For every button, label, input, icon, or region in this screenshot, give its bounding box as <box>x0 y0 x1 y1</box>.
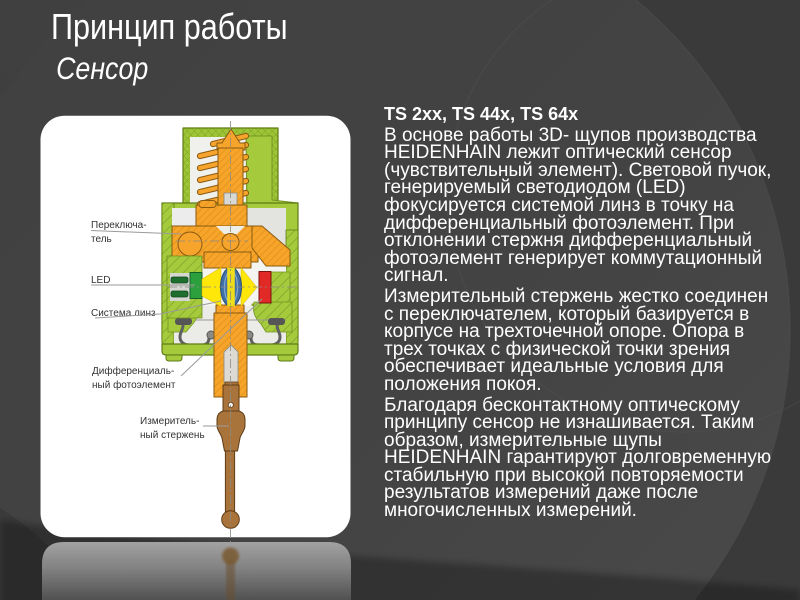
svg-text:LED: LED <box>91 275 110 286</box>
svg-text:ный фотоэлемент: ный фотоэлемент <box>92 379 176 391</box>
svg-text:Измеритель-: Измеритель- <box>140 416 199 427</box>
svg-text:ный стержень: ный стержень <box>140 430 205 441</box>
svg-text:тель: тель <box>91 234 112 245</box>
svg-text:Переключа-: Переключа- <box>91 220 147 231</box>
svg-text:Дифференциаль-: Дифференциаль- <box>92 365 174 377</box>
